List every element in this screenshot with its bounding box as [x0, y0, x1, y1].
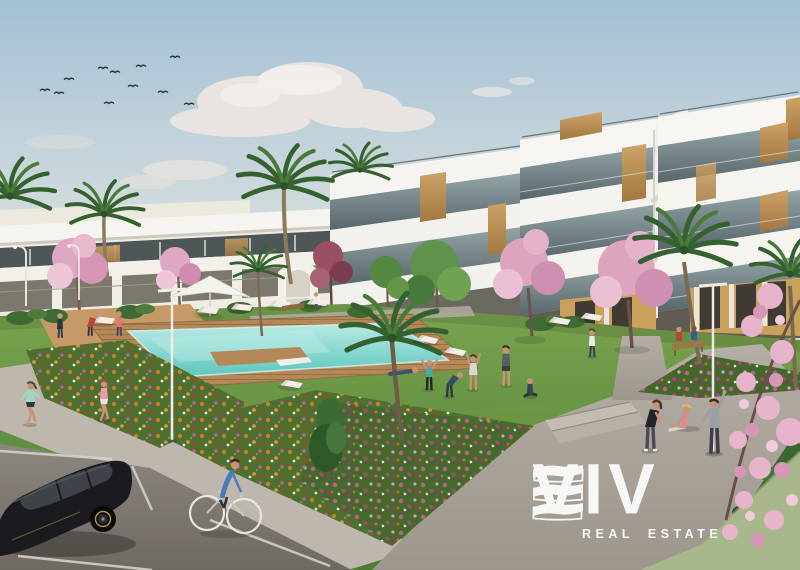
person-seated [691, 326, 697, 340]
person [314, 292, 318, 310]
watermark-tagline: REAL ESTATE [582, 527, 722, 541]
architectural-render: VIV REAL ESTATE [0, 0, 800, 570]
watermark: VIV REAL ESTATE [532, 462, 722, 541]
person-seated [676, 327, 682, 341]
outline-e-icon [531, 465, 585, 524]
